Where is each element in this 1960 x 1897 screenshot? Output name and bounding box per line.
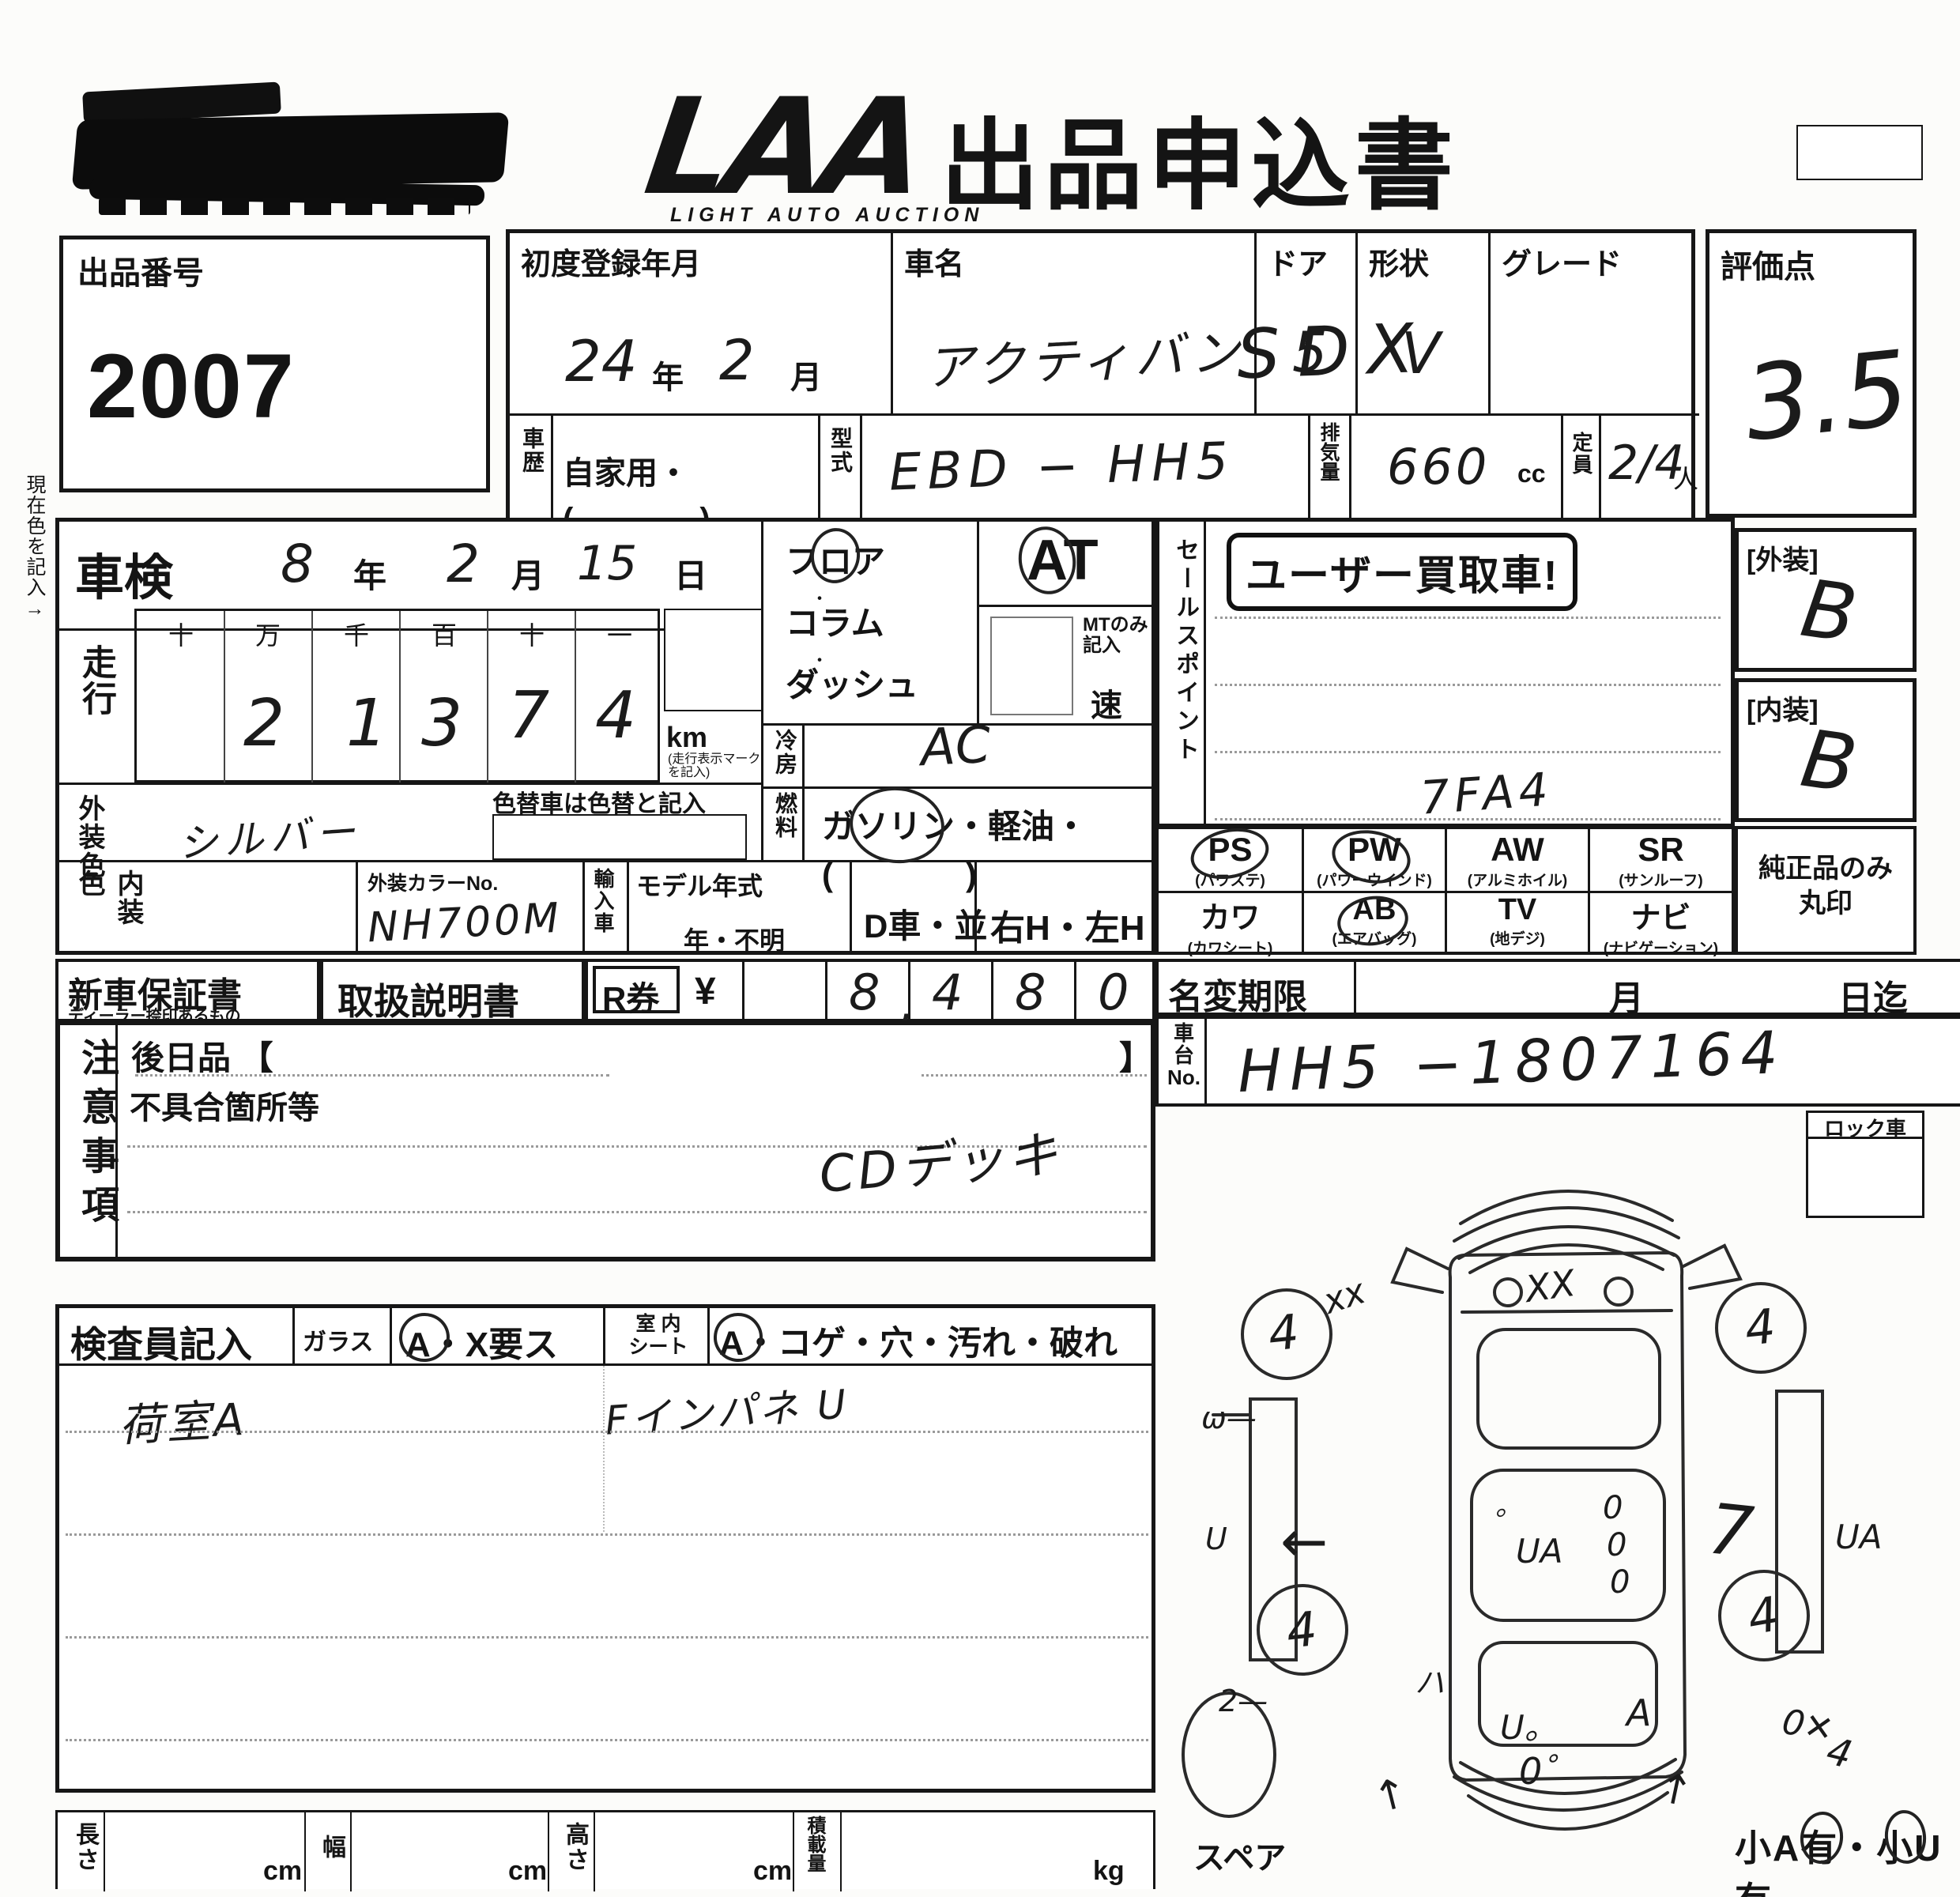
name-change-label: 名変期限 (1168, 968, 1307, 1019)
recycle-label-box: R券 (593, 966, 680, 1013)
speed-suffix: 速 (1091, 680, 1122, 726)
grade-value: SDX (1235, 309, 1432, 395)
mileage-header: 十 (168, 616, 194, 652)
diagram-mark: U (1205, 1522, 1227, 1556)
mileage-header: 一 (607, 616, 632, 652)
inspector-label: 検査員記入 (70, 1316, 252, 1368)
handle-cell: 右H・左H (990, 899, 1145, 950)
grade-label: グレード (1502, 239, 1622, 283)
import-car-label: 輸入車 (589, 868, 618, 934)
exterior-color-value: シルバー (176, 800, 363, 869)
height-label: 高さ (557, 1822, 592, 1872)
color-no-value: NH700M (367, 895, 563, 952)
shift-dash: ダッシュ (786, 654, 918, 716)
mt-note: MTのみ記入 (1083, 615, 1148, 656)
mileage-header: 十 (519, 616, 545, 652)
score-value: 3.5 (1739, 328, 1915, 465)
diagram-mark: 0✕ (1779, 1702, 1837, 1750)
car-diagram: xx XX 4 4 4 4 ω— U ← 。 UA 0 0 0 7 UA ハ 2… (1170, 1130, 1960, 1889)
diagram-mark: 。 (1495, 1484, 1522, 1523)
diagram-mark: 2— (1219, 1684, 1268, 1718)
small-scratch-note: 小A有・小U有 (1735, 1820, 1960, 1897)
later-items-label: 後日品 【 (131, 1031, 273, 1080)
logo-blackout (75, 73, 510, 219)
shaken-month: 2 (447, 534, 480, 594)
diagram-mark-wheel: 4 (1742, 1299, 1777, 1357)
name-change-day: 日迄 (1838, 970, 1908, 1020)
registration-month: 2 (719, 328, 755, 393)
shift-position-cell: フロア コラム ダッシュ ・ ・ (763, 522, 977, 723)
diagram-mark: UA (1516, 1532, 1562, 1571)
length-unit: cm (263, 1856, 302, 1887)
diagram-mark: A (1626, 1691, 1651, 1734)
displacement-value: 660 (1387, 438, 1490, 496)
page-title: 出品申込書 (940, 85, 1458, 228)
equip-sr: SR (サンルーフ) (1590, 829, 1732, 891)
defects-note: CDデッキ (816, 1114, 1064, 1207)
registration-year-suffix: 年 (652, 352, 684, 398)
model-code-value: EBD − HH5 (888, 432, 1235, 502)
mileage-label: 走行 (70, 644, 121, 717)
shaken-label: 車検 (75, 537, 173, 609)
equipment-grid: PS (パワステ) PW (パワーウインド) AW (アルミホイル) SR (サ… (1155, 826, 1735, 955)
user-buyback-stamp: ユーザー買取車! (1227, 533, 1577, 611)
spare-label: スペア (1193, 1832, 1286, 1878)
displacement-label: 排気量 (1314, 422, 1343, 481)
mileage-digit: 4 (595, 678, 636, 753)
brand-laa: LAA (637, 70, 930, 224)
equip-navi: ナビ (ナビゲーション) (1590, 893, 1732, 952)
interior-grade-box: [内装] B (1735, 678, 1917, 822)
shaken-day: 15 (577, 536, 637, 591)
interior-color-label: 内装色 (70, 869, 148, 951)
diagram-mark: 0 (1610, 1564, 1630, 1601)
transmission-cell: AT (979, 522, 1155, 605)
diagram-mark: 0 (1603, 1490, 1623, 1526)
registration-label: 初度登録年月 (521, 239, 701, 283)
dealer-cell: D車・並 (864, 899, 987, 948)
history-label: 車歴 (516, 427, 548, 474)
diagram-mark: XX (1523, 1262, 1578, 1311)
bracket-close: 】 (1119, 1031, 1152, 1080)
shape-label: 形状 (1369, 239, 1429, 283)
doors-label: ドア (1268, 239, 1328, 283)
height-unit: cm (753, 1856, 792, 1887)
seat-value: A・コゲ・穴・汚れ・破れ (719, 1316, 1118, 1365)
length-label: 長さ (67, 1822, 102, 1872)
mileage-digit: 1 (346, 686, 387, 761)
lot-number-label: 出品番号 (77, 247, 204, 293)
aircon-value: AC (919, 716, 992, 779)
shift-column: コラム (786, 593, 918, 654)
diagram-mark: ← (1280, 1508, 1328, 1575)
sales-point-note: 7FA4 (1419, 762, 1555, 825)
manual-label: 取扱説明書 (337, 973, 519, 1025)
color-no-label: 外装カラーNo. (367, 868, 498, 896)
exterior-grade-box: [外装] B (1735, 528, 1917, 672)
chassis-box: 車台No. HH5 −1807164 (1155, 1016, 1960, 1107)
diagram-mark-wheel: 4 (1265, 1304, 1301, 1363)
model-year-label: モデル年式 (636, 866, 763, 903)
diagram-mark-wheel: 4 (1283, 1601, 1319, 1660)
width-unit: cm (508, 1856, 547, 1887)
mileage-digit: 3 (421, 686, 462, 761)
mileage-digit: 7 (508, 678, 549, 753)
brand-subtitle: LIGHT AUTO AUCTION (670, 204, 984, 227)
load-unit: kg (1093, 1856, 1125, 1887)
shaken-month-suffix: 月 (511, 549, 545, 598)
panel-note: Fインパネ U (603, 1372, 851, 1446)
diagram-mark: ハ (1415, 1658, 1445, 1702)
dimensions-table: 長さ cm 幅 cm 高さ cm 積載量 kg (55, 1810, 1155, 1889)
mileage-unit: km (666, 721, 707, 754)
current-color-note: 現在色を記入→ (21, 474, 49, 620)
equip-ab: AB (エアバッグ) (1304, 893, 1445, 952)
auction-sheet: LAA LIGHT AUTO AUCTION 出品申込書 出品番号 2007 初… (0, 0, 1960, 1897)
chassis-value: HH5 −1807164 (1237, 1019, 1787, 1106)
car-name-value: アクティバン (923, 311, 1246, 399)
mt-box (990, 617, 1073, 715)
interior-grade-value: B (1796, 712, 1862, 811)
displacement-unit: cc (1517, 459, 1546, 488)
sales-point-label: セールスポイント (1167, 537, 1202, 765)
recolor-box (492, 814, 747, 860)
exterior-grade-value: B (1796, 562, 1862, 661)
genuine-parts-box: 純正品のみ 丸印 (1735, 826, 1917, 955)
model-year-value: 年・不明 (684, 921, 785, 957)
glass-label: ガラス (303, 1322, 373, 1357)
seat-label: 室 内シート (611, 1313, 706, 1359)
defects-label: 不具合箇所等 (130, 1082, 319, 1128)
vehicle-info-block: 初度登録年月 24 年 2 月 車名 アクティバン ドア 5 形状 V グレード… (506, 229, 1695, 522)
equip-kawa: カワ (カワシート) (1159, 893, 1302, 952)
mileage-unit-note: (走行表示マーク を記入) (668, 752, 771, 779)
name-change-box: 名変期限 月 日迄 (1155, 959, 1960, 1016)
corner-box (1796, 125, 1923, 180)
warranty-box: 新車保証書 ディーラー捺印あるもの (55, 959, 320, 1022)
recycle-currency: ¥ (695, 970, 716, 1013)
equip-ps: PS (パワステ) (1159, 829, 1302, 891)
sticker-box (664, 609, 763, 711)
capacity-unit: 人 (1673, 459, 1698, 496)
mileage-digit: 2 (243, 686, 285, 761)
mileage-header: 千 (344, 616, 369, 652)
diagram-mark: 7 (1705, 1488, 1757, 1573)
chassis-label: 車台No. (1165, 1022, 1203, 1088)
inspector-table: 検査員記入 ガラス A・X要ス 室 内シート A・コゲ・穴・汚れ・破れ 荷室A … (55, 1304, 1155, 1793)
mileage-header: 百 (432, 616, 457, 652)
diagram-mark: UA (1835, 1518, 1882, 1556)
shaken-day-suffix: 日 (674, 549, 707, 598)
score-box: 評価点 3.5 (1706, 229, 1917, 518)
registration-month-suffix: 月 (790, 352, 822, 398)
diagram-mark: 0゜ (1519, 1743, 1578, 1795)
recycle-digit: 8 (1015, 964, 1046, 1021)
recycle-digit: 4 (932, 964, 963, 1021)
genuine-note: 純正品のみ 丸印 (1738, 851, 1913, 921)
sales-point-block: セールスポイント ユーザー買取車! 7FA4 (1155, 518, 1735, 828)
shaken-year: 8 (281, 534, 314, 594)
model-code-label: 型式 (824, 427, 856, 474)
recycle-digit: 8 (849, 964, 880, 1021)
exterior-color-label: 外装色 (70, 794, 109, 880)
mileage-header: 万 (255, 616, 281, 652)
manual-box: 取扱説明書 (320, 959, 585, 1022)
notes-block: 注意事項 後日品 【 】 不具合箇所等 CDデッキ (55, 1020, 1155, 1262)
capacity-label: 定員 (1567, 432, 1596, 476)
condition-table: 車検 8 年 2 月 15 日 走行 十 万 千 百 十 一 2 1 3 7 4… (55, 518, 1155, 955)
lot-number-value: 2007 (87, 334, 296, 439)
registration-year: 24 (565, 328, 638, 394)
width-label: 幅 (314, 1835, 349, 1860)
equip-tv: TV (地デジ) (1447, 893, 1588, 952)
shaken-year-suffix: 年 (353, 549, 386, 598)
equip-aw: AW (アルミホイル) (1447, 829, 1588, 891)
name-change-month: 月 (1609, 970, 1644, 1020)
diagram-mark: U。 (1500, 1701, 1558, 1749)
cargo-note: 荷室A (117, 1384, 248, 1454)
fuel-label: 燃料 (769, 792, 801, 839)
lot-number-box: 出品番号 2007 (59, 236, 490, 492)
aircon-label: 冷房 (769, 729, 801, 776)
recycle-ticket-box: R券 ¥ 8 , 4 8 0 (585, 959, 1155, 1022)
car-name-label: 車名 (904, 239, 964, 283)
load-label: 積載量 (801, 1816, 828, 1872)
diagram-mark: 0 (1607, 1527, 1626, 1563)
mileage-grid: 十 万 千 百 十 一 2 1 3 7 4 (134, 609, 660, 783)
score-label: 評価点 (1721, 241, 1815, 287)
diagram-mark: ω— (1201, 1401, 1257, 1435)
recycle-digit: 0 (1098, 964, 1129, 1021)
equip-pw: PW (パワーウインド) (1304, 829, 1445, 891)
